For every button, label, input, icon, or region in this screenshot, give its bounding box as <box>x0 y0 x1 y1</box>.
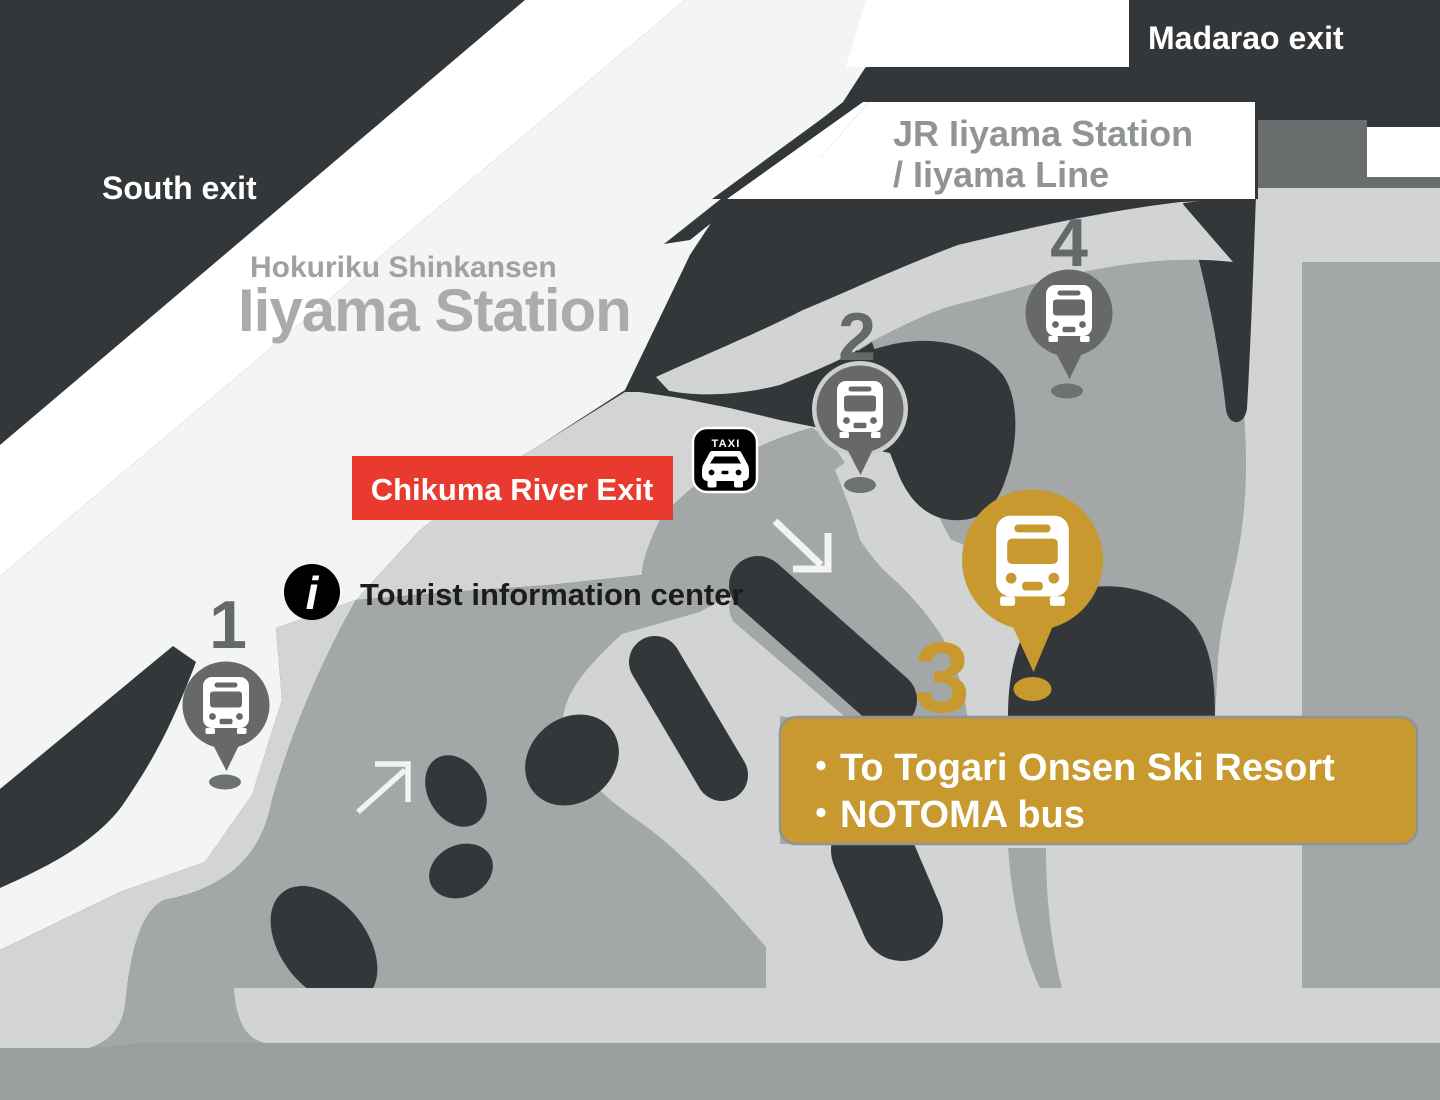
svg-text:JR Iiyama Station: JR Iiyama Station <box>893 113 1193 154</box>
svg-text:/ Iiyama Line: / Iiyama Line <box>893 154 1109 195</box>
svg-text:Iiyama Station: Iiyama Station <box>238 277 631 344</box>
svg-text:・To Togari Onsen Ski Resort: ・To Togari Onsen Ski Resort <box>802 747 1335 789</box>
svg-text:・NOTOMA bus: ・NOTOMA bus <box>802 794 1085 836</box>
svg-text:South exit: South exit <box>102 170 257 206</box>
svg-text:Madarao exit: Madarao exit <box>1148 20 1344 56</box>
svg-text:1: 1 <box>209 587 247 663</box>
svg-text:2: 2 <box>838 299 876 375</box>
svg-text:i: i <box>306 567 320 619</box>
svg-text:Tourist information center: Tourist information center <box>360 577 744 612</box>
svg-text:Chikuma River Exit: Chikuma River Exit <box>371 472 654 507</box>
svg-text:TAXI: TAXI <box>711 438 740 450</box>
